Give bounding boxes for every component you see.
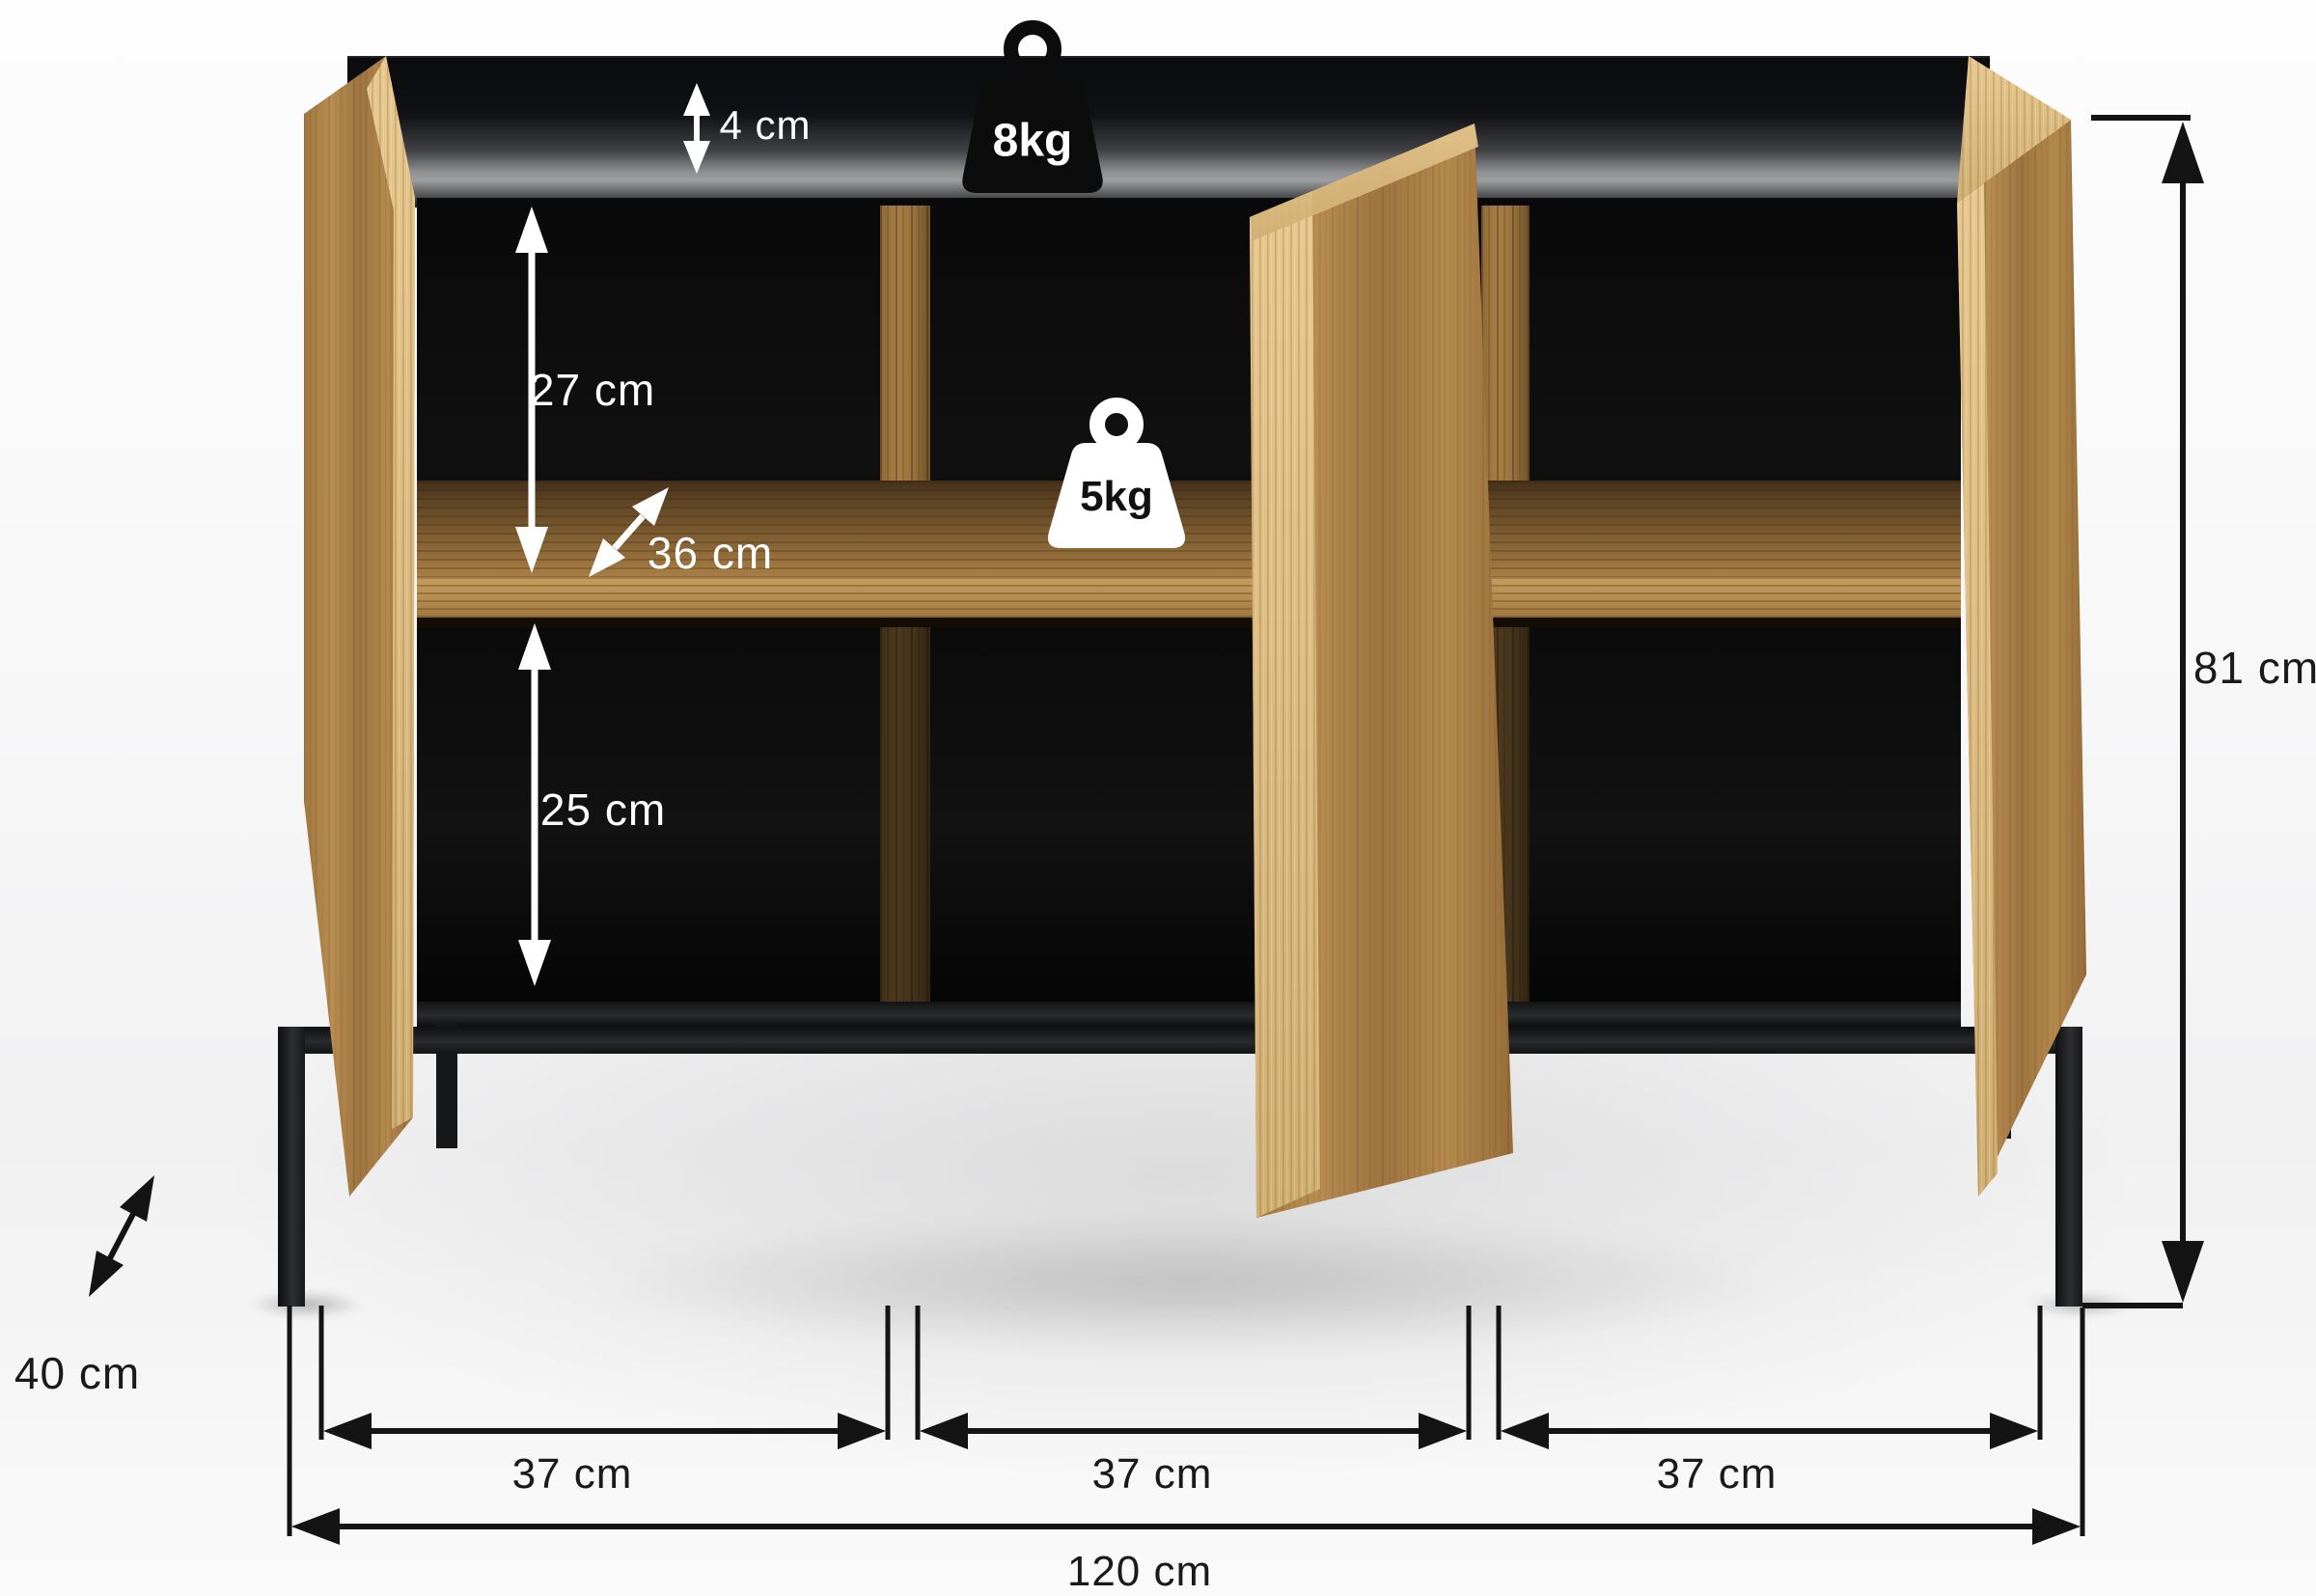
label-width-3: 37 cm — [1657, 1450, 1778, 1499]
left-door-open — [304, 56, 415, 1197]
label-upper-height: 27 cm — [530, 364, 655, 416]
weight-8kg-icon — [962, 28, 1102, 194]
label-top-load: 8kg — [993, 115, 1073, 168]
label-shelf-load: 5kg — [1080, 473, 1153, 521]
product-dimension-diagram: 4 cm 8kg 27 cm 36 cm 5kg 25 cm 81 cm 40 … — [0, 0, 2316, 1596]
diagram-overlay — [0, 0, 2316, 1596]
label-width-2: 37 cm — [1092, 1450, 1213, 1499]
label-body-height: 81 cm — [2193, 642, 2316, 694]
dim-81cm — [2082, 118, 2204, 1306]
dim-120cm — [289, 1306, 2082, 1545]
dim-37cm-segments — [321, 1306, 2040, 1449]
right-door-open — [1957, 56, 2086, 1197]
arrow-40cm — [89, 1175, 154, 1297]
label-width-1: 37 cm — [512, 1450, 633, 1499]
middle-door-open — [1250, 124, 1513, 1218]
arrow-4cm — [683, 83, 710, 174]
label-depth-internal: 36 cm — [648, 527, 773, 579]
label-lower-height: 25 cm — [540, 784, 666, 836]
label-total-depth: 40 cm — [14, 1347, 140, 1399]
label-top-thickness: 4 cm — [719, 102, 811, 149]
label-total-width: 120 cm — [1067, 1548, 1212, 1596]
